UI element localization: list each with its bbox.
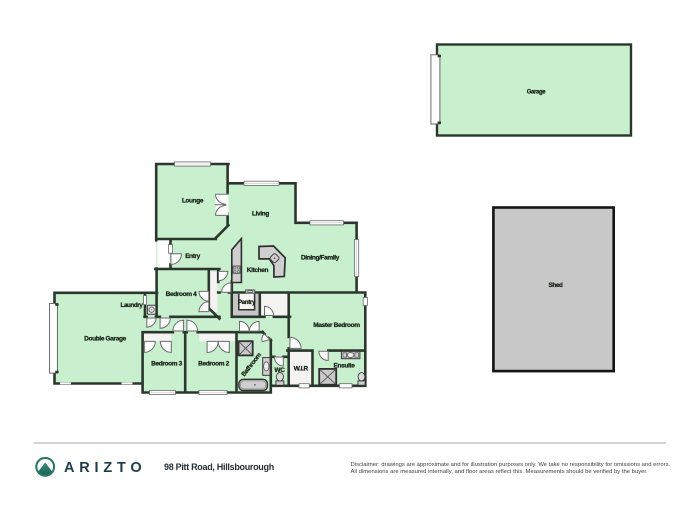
svg-text:Lounge: Lounge (182, 197, 204, 204)
svg-text:Garage: Garage (527, 89, 547, 95)
svg-text:Kitchen: Kitchen (247, 267, 269, 274)
svg-text:Ensuite: Ensuite (333, 362, 355, 369)
svg-text:Dining/Family: Dining/Family (301, 254, 340, 261)
svg-text:Bedroom 4: Bedroom 4 (166, 291, 198, 298)
svg-text:Entry: Entry (185, 253, 201, 260)
svg-text:98 Pitt Road, Hillsbourough: 98 Pitt Road, Hillsbourough (164, 462, 274, 472)
svg-text:Disclaimer: drawings are appro: Disclaimer: drawings are approximate and… (351, 462, 671, 468)
svg-text:Pantry: Pantry (238, 299, 256, 306)
svg-text:Shed: Shed (549, 282, 563, 289)
svg-text:Double Garage: Double Garage (84, 335, 126, 342)
svg-text:Bedroom 2: Bedroom 2 (198, 360, 230, 367)
svg-text:Living: Living (252, 210, 269, 217)
svg-text:ARIZTO: ARIZTO (64, 460, 147, 476)
svg-text:WC: WC (274, 367, 285, 374)
svg-text:All dimensions are measured in: All dimensions are measured internally, … (351, 469, 649, 475)
svg-text:Laundry: Laundry (121, 302, 144, 309)
svg-text:Master Bedroom: Master Bedroom (313, 322, 360, 329)
svg-text:Bedroom 3: Bedroom 3 (151, 360, 183, 367)
svg-text:W.I.R: W.I.R (294, 365, 309, 372)
